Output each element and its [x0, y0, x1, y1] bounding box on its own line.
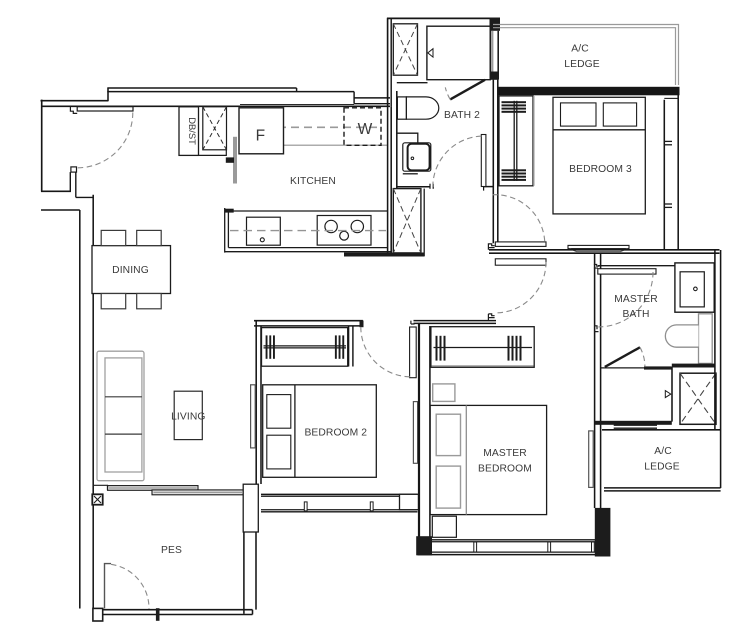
svg-text:BATH: BATH: [622, 309, 649, 320]
svg-text:MASTER: MASTER: [483, 448, 527, 459]
svg-text:KITCHEN: KITCHEN: [290, 176, 336, 187]
svg-text:LIVING: LIVING: [171, 412, 205, 423]
svg-text:A/C: A/C: [571, 44, 589, 55]
svg-text:BATH 2: BATH 2: [444, 110, 480, 121]
svg-text:PES: PES: [161, 545, 182, 556]
svg-text:DINING: DINING: [112, 265, 149, 276]
svg-text:LEDGE: LEDGE: [644, 461, 679, 472]
svg-text:BEDROOM 3: BEDROOM 3: [569, 164, 632, 175]
svg-text:BEDROOM: BEDROOM: [478, 464, 532, 475]
svg-text:DB/ST: DB/ST: [187, 117, 198, 145]
svg-text:LEDGE: LEDGE: [564, 59, 599, 70]
svg-text:A/C: A/C: [654, 446, 672, 457]
svg-text:W: W: [358, 121, 373, 138]
svg-text:BEDROOM 2: BEDROOM 2: [304, 428, 367, 439]
svg-text:MASTER: MASTER: [614, 294, 658, 305]
svg-text:F: F: [256, 128, 265, 145]
